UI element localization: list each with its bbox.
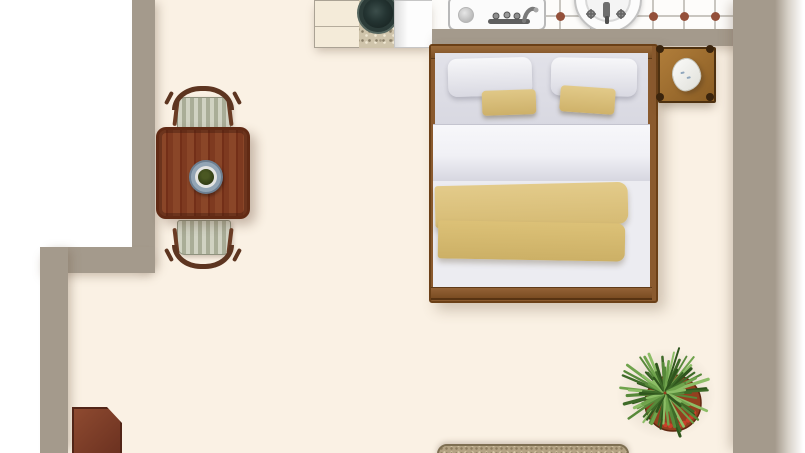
nightstand-knob bbox=[656, 45, 664, 53]
accent-pillow-left bbox=[482, 89, 537, 116]
nightstand-knob bbox=[706, 93, 714, 101]
rug bbox=[437, 444, 629, 453]
kitchen-sink bbox=[448, 0, 546, 29]
tile-grout-line bbox=[545, 15, 733, 17]
bed-footboard bbox=[431, 287, 652, 300]
pedestal-faucet-icon bbox=[584, 1, 628, 27]
kitchen-appliance bbox=[394, 0, 432, 48]
nightstand bbox=[658, 47, 716, 103]
bed-throw-lower bbox=[438, 220, 626, 261]
tile-dot bbox=[556, 12, 565, 21]
kitchen-cabinet bbox=[314, 0, 360, 48]
double-bed bbox=[429, 44, 658, 303]
tile-dot bbox=[649, 12, 658, 21]
table-plate bbox=[189, 160, 223, 194]
duvet-fold bbox=[433, 124, 650, 181]
kitchenette bbox=[314, 0, 432, 48]
nightstand-phone bbox=[669, 55, 704, 93]
potted-plant bbox=[610, 337, 722, 449]
nightstand-knob bbox=[656, 93, 664, 101]
cabinet-divider bbox=[315, 1, 359, 27]
phone-buttons bbox=[687, 76, 691, 79]
wall-lower-left bbox=[40, 247, 68, 453]
wall-upper-left bbox=[132, 0, 155, 273]
bathroom-strip bbox=[432, 0, 733, 29]
wall-right-fade bbox=[775, 0, 805, 453]
wall-right bbox=[733, 0, 775, 453]
plate-food bbox=[198, 169, 214, 185]
dining-table bbox=[156, 127, 250, 219]
nightstand-knob bbox=[706, 45, 714, 53]
tile-dot bbox=[680, 12, 689, 21]
floor-plan-canvas bbox=[0, 0, 805, 453]
sink-drain-icon bbox=[458, 7, 474, 23]
tile-dot bbox=[711, 12, 720, 21]
plant-leaf bbox=[664, 396, 665, 419]
sink-faucet-icon bbox=[480, 0, 540, 27]
accent-pillow-right bbox=[559, 85, 616, 115]
phone-buttons bbox=[680, 71, 684, 74]
